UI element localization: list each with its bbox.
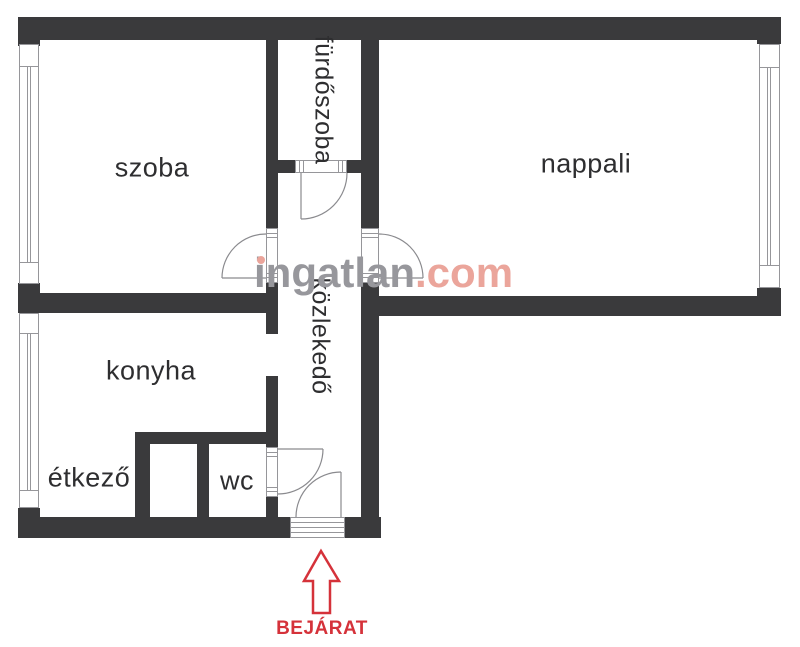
entrance-label: BEJÁRAT bbox=[276, 618, 368, 640]
watermark-i-dot bbox=[257, 256, 265, 264]
wall-wc-left bbox=[197, 444, 209, 517]
wall-bottom-left bbox=[18, 517, 290, 538]
bejarat-arrow-icon bbox=[304, 551, 339, 613]
door-frame-wc bbox=[267, 448, 278, 497]
watermark: ingatlan.com bbox=[254, 252, 513, 294]
wall-divider bbox=[18, 293, 278, 313]
room-label-nappali: nappali bbox=[541, 151, 632, 178]
wall-bath-bottom-right bbox=[347, 160, 361, 173]
wall-right-bottom bbox=[757, 288, 781, 316]
door-swing-wc bbox=[278, 449, 323, 494]
wall-top bbox=[18, 17, 781, 40]
watermark-brand: ingatlan bbox=[254, 249, 415, 296]
window-nappali bbox=[760, 45, 780, 288]
wall-etkezo-right bbox=[135, 432, 150, 517]
wall-corridor-right-lower bbox=[361, 283, 379, 517]
room-label-konyha: konyha bbox=[106, 358, 196, 385]
wall-corridor-left-b bbox=[266, 313, 278, 334]
wall-nappali-bottom bbox=[379, 296, 781, 316]
wall-corridor-left-d bbox=[266, 497, 278, 517]
floor-plan: szoba nappali konyha étkező wc fürdőszob… bbox=[0, 0, 800, 647]
watermark-tld: .com bbox=[415, 249, 513, 296]
window-konyha bbox=[20, 314, 39, 508]
wall-corridor-left-upper bbox=[266, 40, 278, 228]
wall-wc-top bbox=[135, 432, 278, 444]
wall-bottom-right bbox=[345, 517, 381, 538]
wall-right-top bbox=[757, 17, 781, 44]
floor-plan-drawing bbox=[0, 0, 800, 647]
room-label-etkezo: étkező bbox=[48, 465, 131, 492]
wall-bath-bottom-left bbox=[266, 160, 295, 173]
door-swing-entrance bbox=[296, 472, 341, 517]
room-label-wc: wc bbox=[220, 468, 254, 495]
door-frame-entrance bbox=[291, 518, 345, 538]
wall-left-top bbox=[18, 17, 40, 46]
room-label-szoba: szoba bbox=[115, 155, 190, 182]
window-szoba bbox=[20, 45, 39, 284]
door-swing-furdoszoba bbox=[301, 173, 347, 219]
wall-corridor-right-upper bbox=[361, 40, 379, 228]
room-label-furdoszoba: fürdőszoba bbox=[311, 36, 336, 165]
